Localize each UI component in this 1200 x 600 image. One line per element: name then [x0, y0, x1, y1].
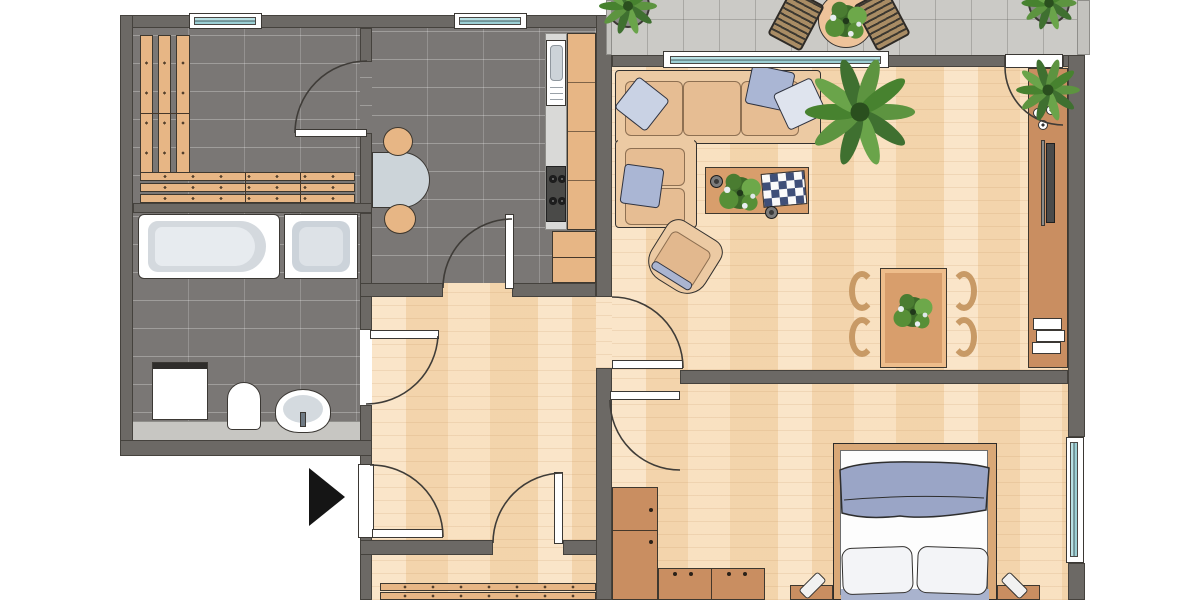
balcony-side-wall-left [606, 0, 612, 55]
dining-chair [849, 317, 875, 357]
kitchen-window-glass [459, 17, 521, 25]
pantry-bench-slat [140, 183, 355, 192]
wall-balcony-left-segment [612, 55, 670, 67]
bathtub [138, 214, 280, 279]
wall-kitchen-bottom-right [512, 283, 596, 297]
wall-kitchen-right [596, 15, 612, 297]
wardrobe-knob [673, 572, 677, 576]
bathroom-door-leaf [370, 330, 439, 339]
pantry-bench-slat [158, 35, 171, 173]
living-room-window-glass [670, 56, 881, 64]
wall-balcony-mid-segment [885, 55, 1005, 67]
pantry-bench-slat [176, 35, 190, 173]
dining-chair [951, 317, 977, 357]
wall-bathroom-bottom [120, 440, 372, 456]
shower-inner [299, 227, 343, 266]
wall-bedroom-west [596, 368, 612, 600]
wardrobe-low-units [658, 568, 765, 600]
dining-chair [849, 271, 875, 311]
balcony-side-wall-right [1077, 0, 1090, 55]
book-stack [1036, 330, 1065, 342]
toilet [227, 382, 261, 430]
wall-bathroom-right-upper [360, 213, 372, 330]
kitchen-sink-basin [550, 45, 563, 81]
wash-basin [275, 389, 331, 433]
table-bowl [765, 206, 778, 219]
wall-pantry-bathroom [133, 203, 372, 213]
pantry-doorway-floor [360, 62, 372, 133]
pantry-door-leaf [295, 129, 367, 137]
bedroom-window-glass [1070, 442, 1078, 557]
sideboard-bowl [1046, 105, 1056, 115]
kitchen-cabinet-column [567, 33, 596, 230]
bottom-room-bench-slat [380, 583, 596, 591]
wall-right-upper [1068, 55, 1085, 437]
floor-plan-canvas [0, 0, 1200, 600]
sofa-pillow [619, 163, 664, 208]
book-stack [1033, 318, 1062, 330]
pantry-bench-slat [140, 194, 355, 203]
dining-chair [951, 271, 977, 311]
chessboard [761, 170, 808, 208]
wall-left [120, 15, 133, 456]
wardrobe-tall-unit [612, 487, 658, 600]
kitchen-table [372, 152, 430, 208]
kitchen-base-cabinet [552, 231, 596, 283]
living-doorway-floor [596, 297, 612, 368]
sideboard-bowl [1038, 120, 1048, 130]
cabinet-seam [553, 257, 595, 258]
wall-right-lower [1068, 563, 1085, 600]
pantry-bench-seam [245, 172, 246, 203]
basin-tap [300, 412, 306, 427]
balcony-door-opening [1005, 54, 1063, 68]
entrance-opening [358, 464, 374, 538]
bathtub-inner [155, 227, 255, 266]
living-room-door-leaf [612, 360, 683, 369]
sofa-cushion [683, 81, 741, 136]
tv-screen [1046, 143, 1055, 223]
bottom-room-bench-slat [380, 592, 596, 600]
table-bowl [710, 175, 723, 188]
washing-machine [152, 362, 208, 420]
tv-stand [1041, 140, 1045, 226]
pantry-bench-seam [300, 172, 301, 203]
shower-tray [284, 214, 358, 279]
bed-pillow [841, 546, 914, 595]
wall-kitchen-bottom-left [360, 283, 443, 297]
wall-bathroom-right-lower [360, 405, 372, 465]
wall-pantry-right-upper [360, 28, 372, 62]
kitchen-stool [384, 204, 416, 234]
kitchen-window [454, 13, 527, 29]
bedroom-door-leaf [610, 391, 680, 400]
pantry-bench-slat [140, 172, 355, 181]
entrance-arrow [309, 468, 345, 526]
pantry-bench-seam [140, 113, 190, 114]
dining-table [880, 268, 947, 368]
wardrobe-knob [689, 572, 693, 576]
kitchen-stove [546, 166, 566, 222]
washing-machine-controls [153, 363, 207, 369]
wardrobe-seam [613, 530, 657, 531]
wall-pantry-right-lower [360, 133, 372, 213]
entrance-door-leaf [372, 529, 443, 538]
kitchen-sink-ridge [550, 87, 563, 88]
kitchen-stool [383, 127, 413, 156]
kitchen-sink [546, 40, 566, 106]
wardrobe-knob [649, 508, 653, 512]
sideboard-bowl [1033, 108, 1043, 118]
pantry-window [189, 13, 262, 29]
wardrobe-seam [711, 569, 712, 599]
bed-pillow [916, 546, 989, 595]
wall-hallway-bottom-left [360, 540, 493, 555]
wardrobe-knob [649, 540, 653, 544]
kitchen-sink-ridge [550, 93, 563, 94]
wall-living-bedroom [680, 370, 1068, 384]
kitchen-door-leaf [505, 214, 514, 289]
book-stack [1032, 342, 1061, 354]
bedroom-window [1066, 437, 1084, 563]
living-room-window [663, 51, 889, 68]
kitchen-sink-ridge [550, 99, 563, 100]
wardrobe-knob [727, 572, 731, 576]
sofa-corner-patch [618, 138, 694, 146]
wardrobe-knob [743, 572, 747, 576]
pantry-bench-slat [140, 35, 153, 173]
bottom-room-door-leaf [554, 472, 563, 544]
pantry-window-glass [194, 17, 256, 25]
